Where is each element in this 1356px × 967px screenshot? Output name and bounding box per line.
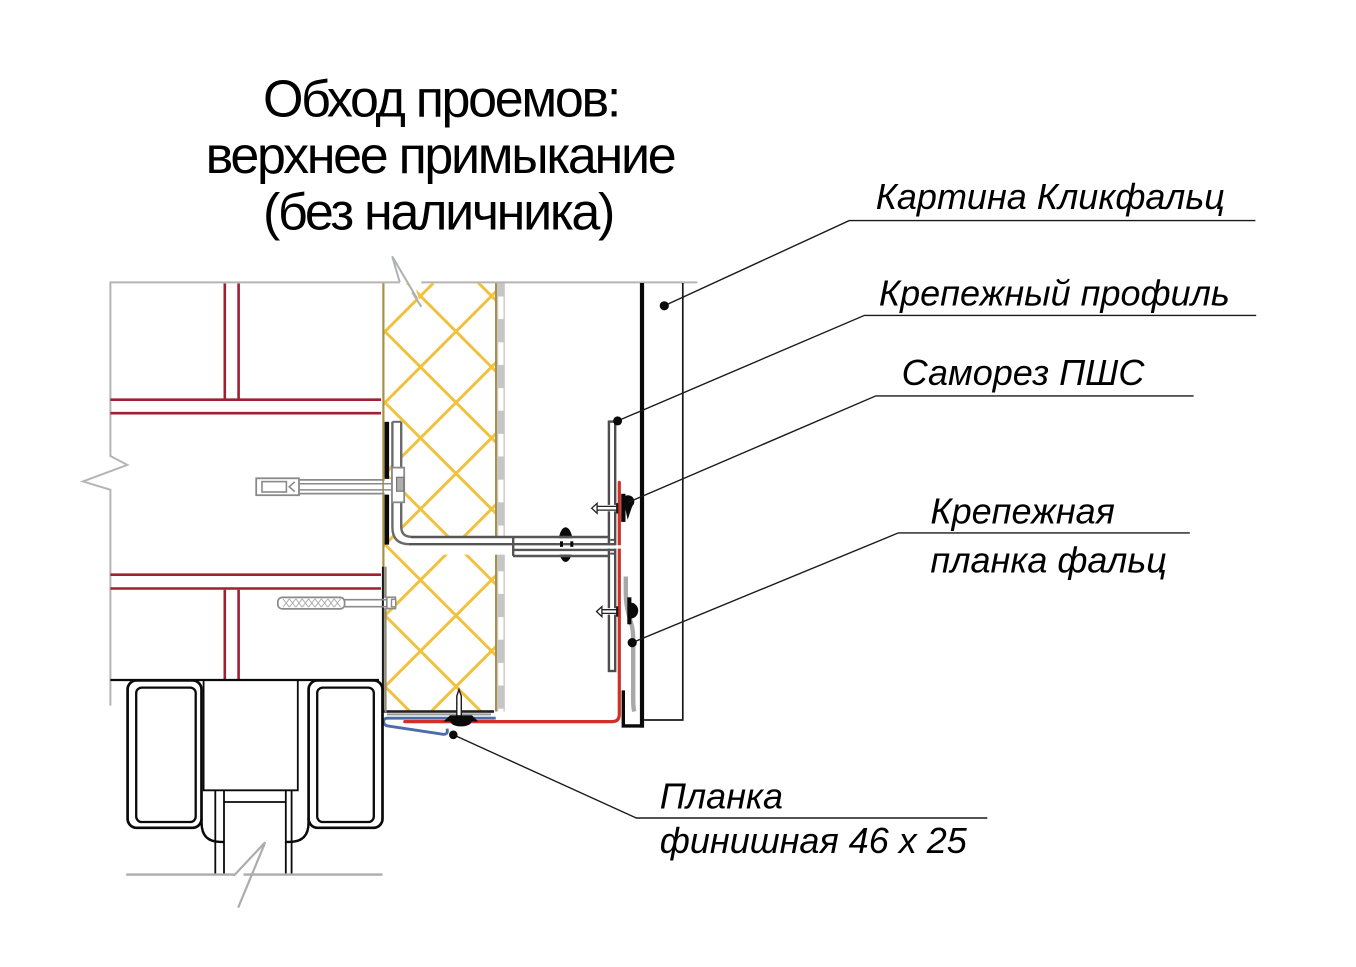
svg-text:Саморез ПШС: Саморез ПШС (902, 352, 1146, 393)
svg-text:Картина Кликфальц: Картина Кликфальц (876, 176, 1225, 217)
svg-text:верхнее примыкание: верхнее примыкание (206, 127, 675, 185)
svg-text:Крепежный профиль: Крепежный профиль (879, 273, 1230, 314)
svg-text:Обход проемов:: Обход проемов: (263, 71, 619, 129)
svg-text:финишная 46 x 25: финишная 46 x 25 (660, 820, 968, 861)
svg-text:Крепежная: Крепежная (930, 490, 1115, 531)
svg-text:(без наличника): (без наличника) (263, 184, 613, 242)
svg-text:Планка: Планка (660, 776, 783, 817)
svg-text:планка фальц: планка фальц (930, 540, 1166, 581)
